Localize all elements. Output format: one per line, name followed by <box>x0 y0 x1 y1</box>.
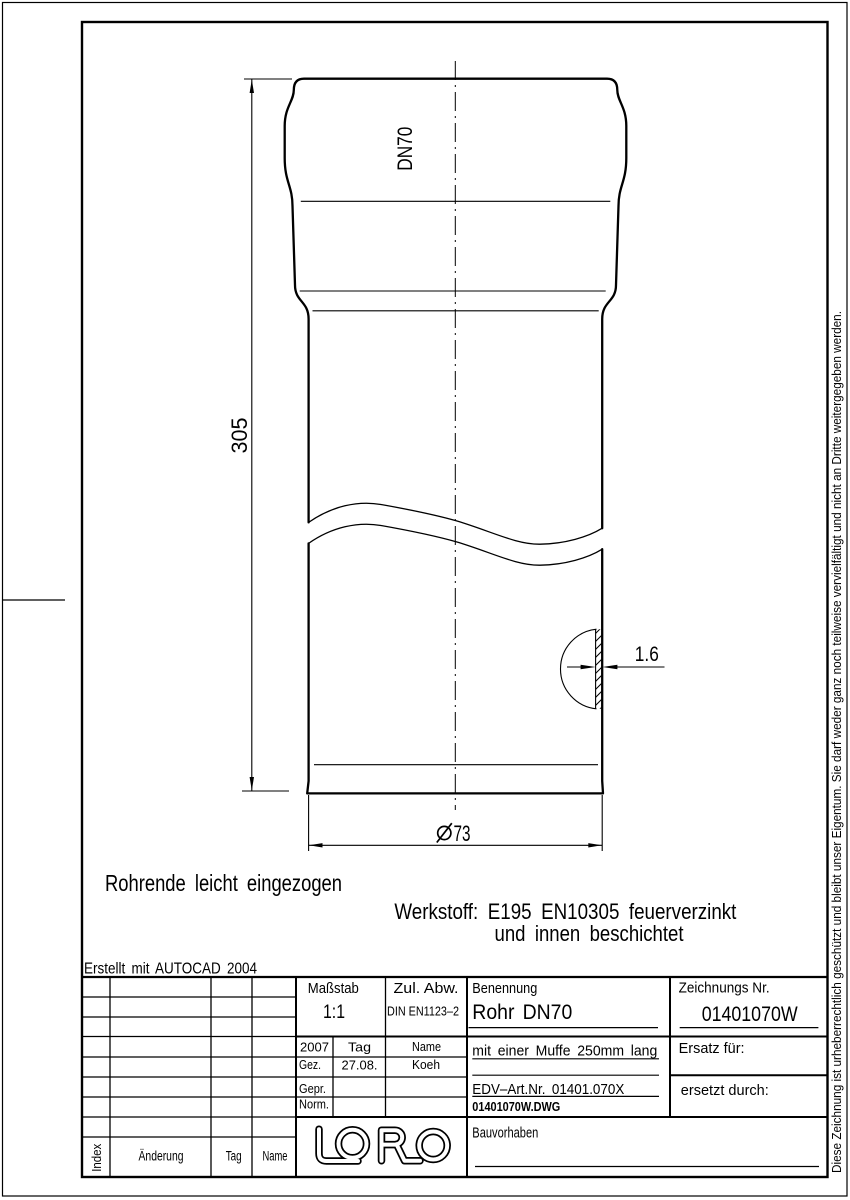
svg-text:73: 73 <box>454 821 471 846</box>
svg-text:ersetzt durch:: ersetzt durch: <box>681 1082 769 1099</box>
svg-text:Name: Name <box>263 1148 288 1163</box>
svg-text:27.08.: 27.08. <box>342 1059 378 1073</box>
svg-text:Norm.: Norm. <box>299 1098 329 1112</box>
svg-text:Diese Zeichnung ist urheberrec: Diese Zeichnung ist urheberrechtlich ges… <box>829 311 844 1173</box>
svg-text:EDV–Art.Nr. 01401.070X: EDV–Art.Nr. 01401.070X <box>472 1081 624 1098</box>
svg-text:Zul. Abw.: Zul. Abw. <box>394 980 459 997</box>
svg-text:Tag: Tag <box>226 1148 242 1163</box>
svg-text:Zeichnungs Nr.: Zeichnungs Nr. <box>679 980 770 997</box>
svg-text:01401070W: 01401070W <box>702 1003 798 1026</box>
svg-text:Bauvorhaben: Bauvorhaben <box>472 1125 538 1142</box>
svg-text:Benennung: Benennung <box>472 980 537 997</box>
svg-text:2007: 2007 <box>300 1041 329 1055</box>
svg-text:Koeh: Koeh <box>412 1058 440 1072</box>
svg-text:Ersatz für:: Ersatz für: <box>679 1040 745 1057</box>
svg-text:DN70: DN70 <box>393 127 417 171</box>
svg-text:01401070W.DWG: 01401070W.DWG <box>472 1100 560 1114</box>
svg-text:mit einer Muffe 250mm lang: mit einer Muffe 250mm lang <box>472 1043 657 1060</box>
svg-text:Gez.: Gez. <box>299 1058 321 1072</box>
svg-text:1:1: 1:1 <box>323 1001 345 1023</box>
svg-text:Index: Index <box>89 1143 104 1171</box>
svg-text:Name: Name <box>412 1040 441 1054</box>
svg-text:Rohrende leicht eingezogen: Rohrende leicht eingezogen <box>105 870 342 896</box>
svg-text:Erstellt mit AUTOCAD 2004: Erstellt mit AUTOCAD 2004 <box>84 961 257 978</box>
svg-text:305: 305 <box>227 418 252 454</box>
svg-text:Rohr DN70: Rohr DN70 <box>472 1001 572 1024</box>
svg-text:DIN EN1123–2: DIN EN1123–2 <box>387 1003 459 1018</box>
svg-text:Maßstab: Maßstab <box>308 980 359 997</box>
svg-text:Gepr.: Gepr. <box>299 1082 326 1096</box>
svg-text:Tag: Tag <box>348 1041 371 1055</box>
svg-text:1.6: 1.6 <box>635 642 659 666</box>
svg-text:und innen beschichtet: und innen beschichtet <box>495 921 684 946</box>
svg-text:Änderung: Änderung <box>139 1148 184 1163</box>
